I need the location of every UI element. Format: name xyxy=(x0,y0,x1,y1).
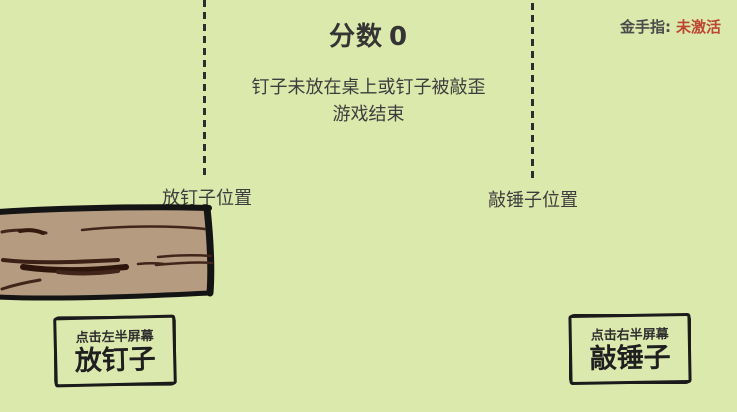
wooden-plank xyxy=(0,204,224,304)
score-value: 0 xyxy=(389,22,408,52)
hit-hammer-button[interactable]: 点击右半屏幕 敲锤子 xyxy=(568,313,691,385)
place-nail-label: 放钉子 xyxy=(74,345,156,377)
game-over-message: 钉子未放在桌上或钉子被敲歪 游戏结束 xyxy=(0,74,737,128)
game-over-reason: 钉子未放在桌上或钉子被敲歪 xyxy=(0,74,737,101)
game-screen: 分数0 金手指:未激活 钉子未放在桌上或钉子被敲歪 游戏结束 放钉子位置 敲锤子… xyxy=(0,0,737,412)
hammer-position-line xyxy=(531,3,534,178)
place-nail-button[interactable]: 点击左半屏幕 放钉子 xyxy=(53,315,177,388)
score-label: 分数 xyxy=(329,22,383,52)
hit-hammer-hint: 点击右半屏幕 xyxy=(591,323,669,343)
cheat-indicator: 金手指:未激活 xyxy=(620,16,721,37)
game-over-text: 游戏结束 xyxy=(0,101,737,128)
place-nail-hint: 点击左半屏幕 xyxy=(75,325,153,346)
cheat-status: 未激活 xyxy=(676,18,721,36)
hammer-position-label: 敲锤子位置 xyxy=(488,186,578,212)
cheat-label: 金手指: xyxy=(620,18,671,36)
hit-hammer-label: 敲锤子 xyxy=(589,343,671,374)
nail-position-line xyxy=(203,0,206,178)
